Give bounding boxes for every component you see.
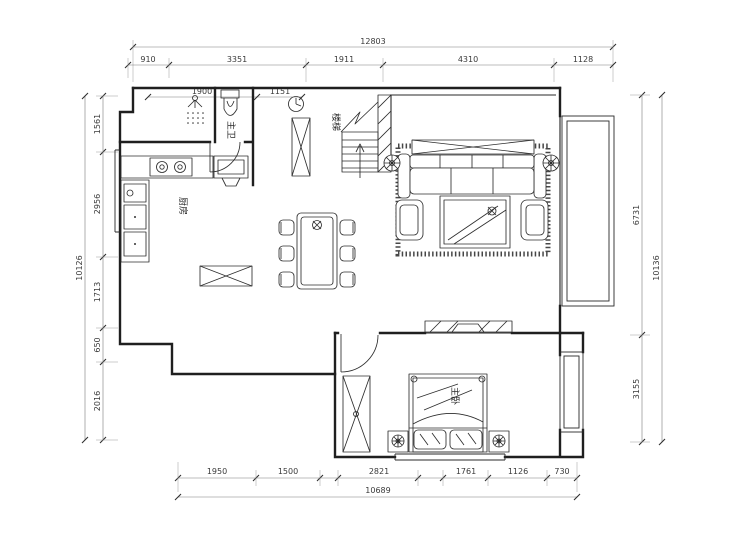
armchair-right (521, 200, 548, 240)
bedroom-label: 主卧 (449, 387, 461, 405)
pillow-left (414, 430, 446, 449)
dim-right-total: 10136 (652, 255, 661, 280)
tv-cabinet (425, 321, 512, 332)
hall-cabinet (292, 118, 310, 176)
dimension-lines (82, 40, 665, 500)
kitchen-counter-top (121, 156, 213, 178)
dining-chairs (279, 220, 355, 287)
dim-top-4: 4310 (458, 55, 478, 64)
bathroom: 主卫 (187, 90, 303, 139)
floor-plan-canvas: 12803 910 3351 1911 4310 1128 1900 1151 … (0, 0, 740, 555)
dim-left-4: 650 (93, 337, 102, 352)
dim-top-5: 1128 (573, 55, 593, 64)
dim-top-2: 3351 (227, 55, 247, 64)
dim-bottom-1: 1950 (207, 467, 227, 476)
stair-break-line (341, 102, 378, 132)
coffee-table (440, 196, 510, 248)
dim-top-total: 12803 (360, 37, 385, 46)
dim-top-3: 1911 (334, 55, 354, 64)
stairs: 楼梯 (330, 95, 391, 178)
nightstand-left (388, 431, 408, 452)
armchair-left (396, 200, 423, 240)
floor-lamp-icon-right (543, 155, 559, 171)
dim-bottom-6: 730 (554, 467, 569, 476)
bathroom-label: 主卫 (225, 121, 237, 139)
dim-top-1: 910 (140, 55, 155, 64)
dim-bottom-3: 2821 (369, 467, 389, 476)
dimension-labels: 12803 910 3351 1911 4310 1128 1900 1151 … (75, 37, 661, 495)
dim-right-1: 6731 (632, 205, 641, 225)
toilet-icon (221, 90, 239, 116)
bathroom-door-arc (210, 142, 240, 172)
dim-left-3: 1713 (93, 282, 102, 302)
dining-area (279, 213, 355, 289)
dim-bottom-5: 1126 (508, 467, 528, 476)
living-room (384, 140, 559, 332)
stove-icon (150, 158, 192, 176)
bedroom-door-arc (341, 334, 378, 372)
floor-lamp-icon-left (384, 155, 400, 171)
wardrobe (343, 376, 370, 452)
floor-plan-drawing: 12803 910 3351 1911 4310 1128 1900 1151 … (0, 0, 740, 555)
sofa-console (412, 140, 534, 154)
pillow-right (450, 430, 482, 449)
kitchen-counter-left (121, 180, 149, 262)
dim-left-1: 1561 (93, 114, 102, 134)
bed (409, 374, 487, 452)
bedroom: 主卧 (343, 374, 509, 452)
sofa (398, 154, 546, 198)
shower-icon (187, 96, 204, 124)
column-block (200, 266, 252, 286)
dim-left-5: 2016 (93, 391, 102, 411)
kitchen-label: 厨房 (177, 197, 189, 215)
dim-bottom-2: 1500 (278, 467, 298, 476)
nightstand-right (489, 431, 509, 452)
washbasin-icon (289, 97, 304, 112)
entry-hall (292, 118, 310, 176)
dim-left-2: 2956 (93, 194, 102, 214)
dim-left-total: 10126 (75, 255, 84, 280)
stairs-label: 楼梯 (330, 113, 342, 131)
dim-right-2: 3155 (632, 379, 641, 399)
dim-bottom-total: 10689 (365, 486, 390, 495)
dim-bottom-4: 1761 (456, 467, 476, 476)
kitchen: 厨房 (121, 156, 252, 286)
